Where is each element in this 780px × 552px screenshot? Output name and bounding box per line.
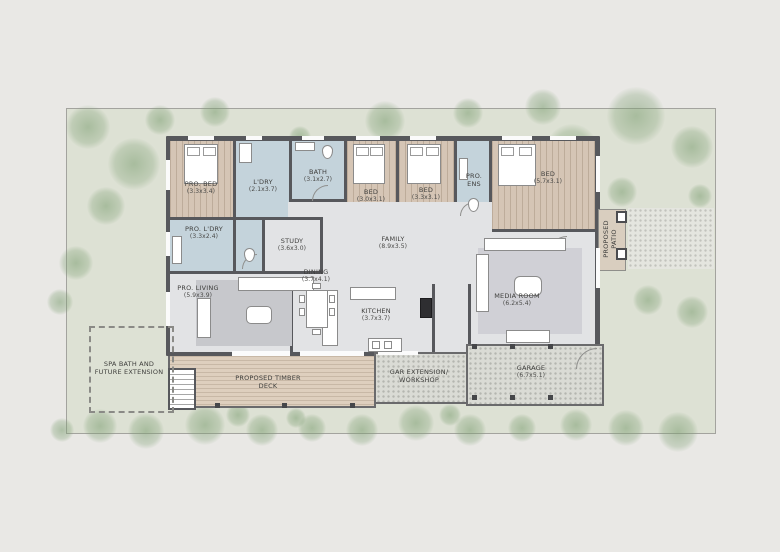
room-label-bed-1: BED(3.0x3.1) (357, 188, 385, 204)
room-name: GARAGE (517, 364, 545, 372)
room-label-pro-ens: PRO. ENS (459, 172, 489, 188)
room-dim: (2.1x3.7) (249, 186, 277, 194)
label-patio: PROPOSED PATIO (602, 209, 618, 269)
label-timber-deck: PROPOSED TIMBER DECK (226, 374, 310, 390)
gravel-path (628, 208, 714, 269)
garage-pillar (472, 344, 477, 349)
window (166, 232, 170, 256)
room-name: PRO. L'DRY (185, 225, 223, 233)
room-dim: (5.7x3.1) (534, 178, 562, 186)
deck-post (215, 403, 220, 408)
pillow (501, 147, 514, 156)
chair (299, 308, 305, 316)
garden-tree (128, 413, 164, 449)
garden-tree (398, 405, 434, 441)
garden-tree (671, 126, 713, 168)
room-name: BED (541, 170, 555, 178)
sofa (484, 238, 566, 251)
garden-tree (453, 98, 483, 128)
garden-tree (676, 296, 708, 328)
garden-tree (108, 138, 160, 190)
garden-tree (185, 405, 225, 445)
room-label-ldry: L'DRY(2.1x3.7) (249, 178, 277, 194)
floor-plan-canvas: PRO. BED(3.3x3.4) L'DRY(2.1x3.7) BATH(3.… (0, 0, 780, 552)
room-name: DINING (304, 268, 329, 276)
sofa (506, 330, 550, 343)
pillow (410, 147, 423, 156)
garden-tree (50, 418, 74, 442)
window (188, 136, 214, 140)
room-label-pro-living: PRO. LIVING(5.9x3.9) (177, 284, 218, 300)
garden-tree (346, 414, 378, 446)
deck-post (350, 403, 355, 408)
garden-tree (439, 404, 461, 426)
cooktop (420, 298, 432, 318)
garden-tree (66, 105, 110, 149)
window (596, 248, 600, 288)
room-label-family: FAMILY(8.9x3.5) (379, 235, 407, 251)
chair (329, 295, 335, 303)
room-dim: (5.9x3.9) (177, 292, 218, 300)
room-dim: (3.6x3.0) (278, 245, 306, 253)
pillow (519, 147, 532, 156)
room-label-bed-2: BED(3.3x3.1) (412, 186, 440, 202)
room-label-pro-bed: PRO. BED(3.3x3.4) (185, 180, 218, 196)
room-dim: (3.3x3.4) (185, 188, 218, 196)
garden-tree (607, 177, 637, 207)
room-name: SPA BATH AND FUTURE EXTENSION (95, 360, 164, 376)
deck-sliding-door (232, 351, 290, 356)
deck-post (282, 403, 287, 408)
garage-pillar (472, 395, 477, 400)
room-name: PROPOSED PATIO (602, 218, 618, 260)
pillow (426, 147, 439, 156)
chair (299, 295, 305, 303)
room-name: GAR EXTENSION/ WORKSHOP (390, 368, 448, 384)
chair (312, 283, 321, 289)
laundry-bench (172, 236, 182, 264)
room-name: MEDIA ROOM (494, 292, 540, 300)
room-name: L'DRY (253, 178, 272, 186)
room-name: PRO. LIVING (177, 284, 218, 292)
window (502, 136, 532, 140)
window (302, 136, 324, 140)
room-dim: (3.3x2.4) (185, 233, 223, 241)
garden-tree (286, 408, 306, 428)
garden-tree (688, 184, 712, 208)
dining-table (306, 290, 328, 328)
room-name: PROPOSED TIMBER DECK (235, 374, 300, 390)
label-garage: GARAGE(6.7x5.1) (517, 364, 545, 380)
garden-tree (246, 414, 278, 446)
room-dim: (3.0x3.1) (357, 196, 385, 204)
room-name: PRO. ENS (466, 172, 482, 188)
room-dim: (8.9x3.5) (379, 243, 407, 251)
garden-tree (633, 285, 663, 315)
chair (329, 308, 335, 316)
garden-tree (365, 101, 405, 141)
garden-tree (607, 87, 665, 145)
room-label-pro-ldry: PRO. L'DRY(3.3x2.4) (185, 225, 223, 241)
window (246, 136, 262, 140)
garage-pillar (548, 395, 553, 400)
armchair (197, 298, 211, 338)
room-name: BATH (309, 168, 327, 176)
room-name: PRO. BED (185, 180, 218, 188)
room-dim: (6.7x5.1) (517, 372, 545, 380)
sink (384, 341, 392, 349)
garden-tree (560, 409, 592, 441)
room-name: STUDY (281, 237, 303, 245)
garage-pillar (548, 344, 553, 349)
garden-tree (658, 412, 698, 452)
kitchen-counter (350, 287, 396, 300)
room-label-study: STUDY(3.6x3.0) (278, 237, 306, 253)
garden-tree (508, 414, 536, 442)
garage-pillar (510, 395, 515, 400)
coffee-table (246, 306, 272, 324)
washer (239, 143, 252, 163)
room-label-bed-3: BED(5.7x3.1) (534, 170, 562, 186)
sofa (476, 254, 489, 312)
garden-tree (525, 89, 561, 125)
window (550, 136, 576, 140)
pillow (356, 147, 369, 156)
pillow (187, 147, 200, 156)
garden-tree (608, 410, 644, 446)
garage-pillar (510, 344, 515, 349)
room-label-kitchen: KITCHEN(3.7x3.7) (361, 307, 391, 323)
room-dim: (3.1x2.7) (304, 176, 332, 184)
label-spa-extension: SPA BATH AND FUTURE EXTENSION (93, 360, 165, 376)
room-dim: (3.7x4.1) (302, 276, 330, 284)
sink (372, 341, 380, 349)
room-label-dining: DINING(3.7x4.1) (302, 268, 330, 284)
pillow (370, 147, 383, 156)
room-dim: (6.2x5.4) (494, 300, 540, 308)
label-workshop: GAR EXTENSION/ WORKSHOP (384, 368, 454, 384)
garden-tree (59, 246, 93, 280)
room-name: KITCHEN (361, 307, 391, 315)
garden-tree (145, 105, 175, 135)
garden-tree (200, 97, 230, 127)
deck-sliding-door (300, 351, 364, 356)
room-label-media: MEDIA ROOM(6.2x5.4) (494, 292, 540, 308)
window (166, 292, 170, 326)
window (596, 156, 600, 192)
room-label-bath: BATH(3.1x2.7) (304, 168, 332, 184)
room-dim: (3.7x3.7) (361, 315, 391, 323)
garden-tree (83, 409, 117, 443)
chair (312, 329, 321, 335)
hall-floor (435, 284, 468, 352)
vanity (295, 142, 315, 151)
room-name: BED (419, 186, 433, 194)
room-name: BED (364, 188, 378, 196)
room-dim: (3.3x3.1) (412, 194, 440, 202)
window (356, 136, 380, 140)
window (410, 136, 436, 140)
pillow (203, 147, 216, 156)
garden-tree (47, 289, 73, 315)
garden-tree (87, 187, 125, 225)
room-name: FAMILY (381, 235, 404, 243)
window (166, 160, 170, 190)
